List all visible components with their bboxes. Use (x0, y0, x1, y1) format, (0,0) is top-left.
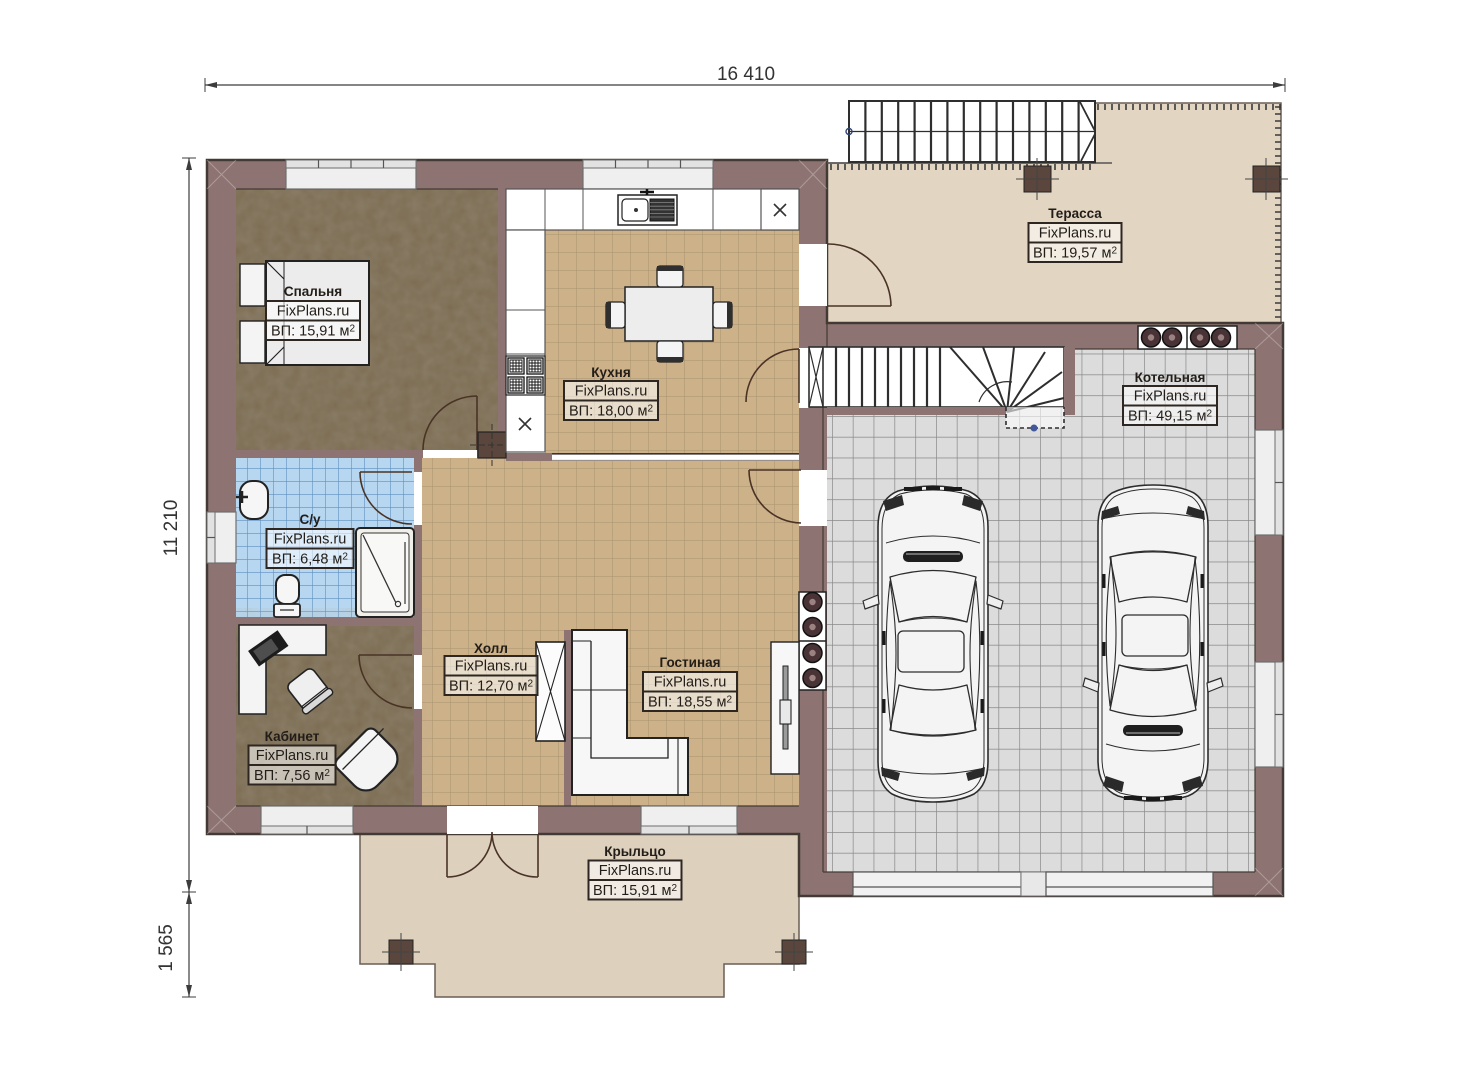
svg-text:FixPlans.ru: FixPlans.ru (1039, 226, 1112, 242)
svg-text:ВП: 6,48 м2: ВП: 6,48 м2 (272, 552, 348, 568)
svg-text:ВП: 15,91 м2: ВП: 15,91 м2 (593, 883, 677, 899)
svg-text:FixPlans.ru: FixPlans.ru (455, 659, 528, 675)
svg-text:FixPlans.ru: FixPlans.ru (274, 532, 347, 548)
svg-text:11 210: 11 210 (161, 500, 182, 557)
svg-text:ВП: 12,70 м2: ВП: 12,70 м2 (449, 679, 533, 695)
svg-text:Кухня: Кухня (591, 365, 630, 380)
svg-text:Гостиная: Гостиная (659, 655, 720, 670)
svg-text:FixPlans.ru: FixPlans.ru (654, 675, 727, 691)
svg-text:ВП: 49,15 м2: ВП: 49,15 м2 (1128, 409, 1212, 425)
svg-text:FixPlans.ru: FixPlans.ru (1134, 389, 1207, 405)
svg-text:1 565: 1 565 (156, 924, 177, 972)
svg-text:16 410: 16 410 (717, 64, 775, 85)
svg-text:ВП: 7,56 м2: ВП: 7,56 м2 (254, 768, 330, 784)
svg-text:ВП: 19,57 м2: ВП: 19,57 м2 (1033, 246, 1117, 262)
svg-text:Котельная: Котельная (1135, 370, 1206, 385)
svg-text:Кабинет: Кабинет (265, 729, 320, 744)
svg-text:FixPlans.ru: FixPlans.ru (256, 748, 329, 764)
svg-text:FixPlans.ru: FixPlans.ru (277, 304, 350, 320)
svg-text:ВП: 18,55 м2: ВП: 18,55 м2 (648, 695, 732, 711)
svg-text:Терасса: Терасса (1048, 206, 1102, 221)
svg-text:Спальня: Спальня (284, 284, 342, 299)
svg-text:Холл: Холл (474, 641, 508, 656)
svg-text:FixPlans.ru: FixPlans.ru (575, 384, 648, 400)
svg-text:FixPlans.ru: FixPlans.ru (599, 863, 672, 879)
svg-text:ВП: 15,91 м2: ВП: 15,91 м2 (271, 324, 355, 340)
svg-text:С/у: С/у (299, 512, 321, 527)
svg-text:Крыльцо: Крыльцо (604, 844, 665, 859)
svg-text:ВП: 18,00 м2: ВП: 18,00 м2 (569, 404, 653, 420)
